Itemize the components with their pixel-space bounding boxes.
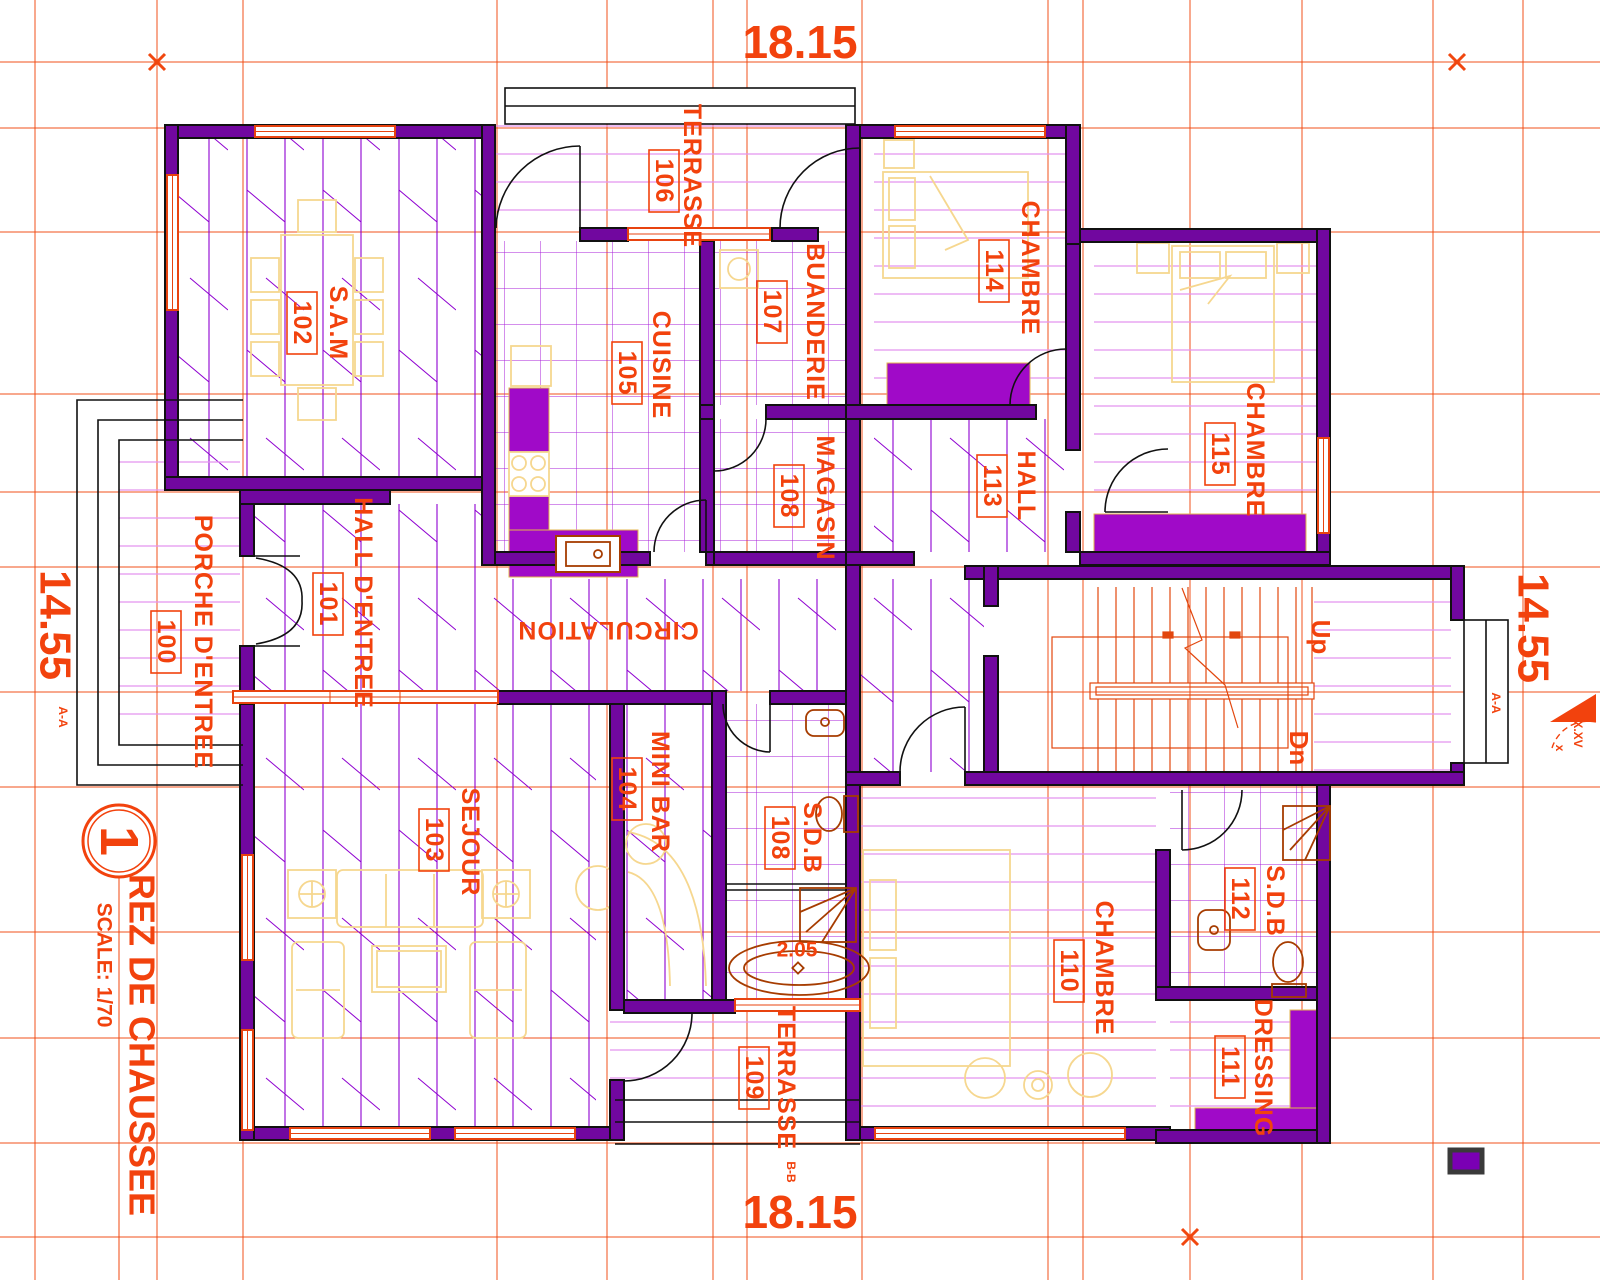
dim-left: 14.55 <box>31 570 80 680</box>
room-name: S.A.M <box>324 286 352 360</box>
room-name: MINI BAR <box>646 731 674 853</box>
room-name: DRESSING <box>1249 999 1277 1138</box>
room-number: 100 <box>152 620 180 665</box>
room-name: TERRASSE <box>678 104 706 248</box>
dim-right: 14.55 <box>1509 573 1558 683</box>
stairs-down-label: Dn <box>1284 731 1314 766</box>
room-name: HALL D'ENTREE <box>349 497 377 709</box>
washbasin-sdb108 <box>806 710 844 736</box>
section-mark-bottom: B-B <box>784 1161 798 1183</box>
wardrobe-chambre115 <box>1094 514 1306 552</box>
sheet-number: 1 <box>89 826 149 856</box>
floor-plan-drawing: Up Dn PORCHE D'ENTREE 100 <box>0 0 1600 1280</box>
shower-sdb112 <box>1283 806 1330 860</box>
room-name: BUANDERIE <box>801 243 829 401</box>
room-name: HALL <box>1012 451 1040 522</box>
room-number: 110 <box>1055 949 1083 992</box>
section-mark-left: A-A <box>56 706 70 728</box>
kitchen-counter-1 <box>509 388 549 453</box>
room-number: 111 <box>1216 1046 1244 1088</box>
room-number: 107 <box>758 290 786 335</box>
window <box>895 126 1045 137</box>
window <box>290 1128 430 1139</box>
toilet-sdb112 <box>1272 942 1306 997</box>
room-number: 104 <box>613 767 641 812</box>
room-number: 115 <box>1206 432 1234 475</box>
bathtub-dimension: 2.05 <box>777 939 818 962</box>
room-number: 108 <box>766 816 794 861</box>
shower-sdb108 <box>800 888 856 942</box>
fridge <box>511 346 551 386</box>
dim-top: 18.15 <box>742 16 857 68</box>
section-cut-symbol: X.XV x <box>1550 694 1596 752</box>
room-name: PORCHE D'ENTREE <box>189 515 217 769</box>
wardrobe-chambre114 <box>887 363 1030 405</box>
plan-title: REZ DE CHAUSSEE <box>122 874 163 1216</box>
floor-stair-landing <box>1314 587 1451 771</box>
room-number: 109 <box>740 1056 768 1101</box>
kitchen-counter-2 <box>509 495 549 530</box>
window <box>167 175 178 310</box>
dim-bottom: 18.15 <box>742 1186 857 1238</box>
room-name: CHAMBRE <box>1090 901 1118 1036</box>
room-number: 113 <box>978 464 1006 507</box>
plan-scale: SCALE: 1/70 <box>93 903 116 1028</box>
section-mark-right: A-A <box>1489 692 1503 714</box>
room-name: MAGASIN <box>811 435 839 560</box>
legend-square <box>1450 1150 1482 1172</box>
room-number: 106 <box>650 159 678 204</box>
room-name: S.D.B <box>1261 865 1289 937</box>
window <box>242 1030 253 1130</box>
room-number: 105 <box>613 351 641 396</box>
stairs-up-label: Up <box>1306 620 1336 655</box>
floor-terrasse109 <box>610 1014 860 1098</box>
kitchen-sink <box>556 536 620 572</box>
staircase: Up Dn <box>1052 587 1336 771</box>
room-name: CHAMBRE <box>1241 383 1269 518</box>
bed-chambre110 <box>863 850 1010 1066</box>
room-name: S.D.B <box>798 802 826 874</box>
room-number: 101 <box>314 582 342 627</box>
room-number: 103 <box>420 818 448 863</box>
floor-plan-sheet: Up Dn PORCHE D'ENTREE 100 <box>0 0 1600 1280</box>
room-number: 114 <box>980 249 1008 292</box>
window <box>1318 438 1329 533</box>
room-number: 102 <box>288 301 316 346</box>
window <box>255 126 395 137</box>
room-name: TERRASSE <box>772 1006 800 1150</box>
section-symbol-sub: x <box>1553 745 1567 752</box>
window <box>875 1128 1125 1139</box>
room-label-circulation: CIRCULATION <box>517 616 698 644</box>
room-name: SEJOUR <box>456 788 484 897</box>
window <box>242 855 253 960</box>
section-symbol-text: X.XV <box>1571 720 1585 747</box>
room-number: 112 <box>1226 877 1254 920</box>
washer-buanderie <box>720 250 758 288</box>
room-name: CHAMBRE <box>1016 201 1044 336</box>
window <box>455 1128 575 1139</box>
room-number: 108 <box>775 474 803 519</box>
stove <box>509 452 549 496</box>
room-name: CUISINE <box>647 311 675 419</box>
title-block: 1 REZ DE CHAUSSEE SCALE: 1/70 <box>83 805 163 1280</box>
